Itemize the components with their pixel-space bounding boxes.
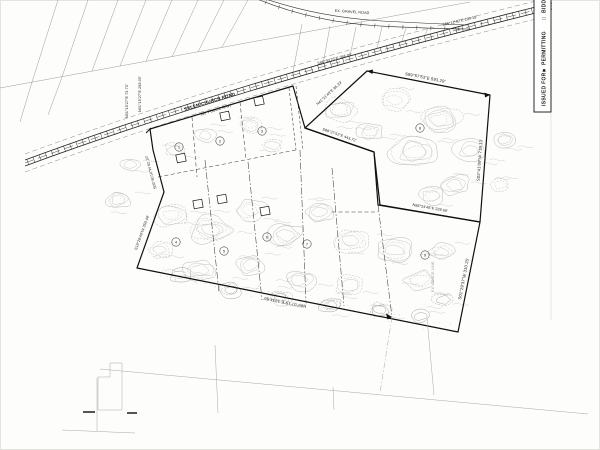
contour-line	[163, 211, 179, 220]
contour-line	[373, 306, 386, 315]
contour-stipple	[187, 276, 188, 277]
contour-line	[463, 146, 478, 156]
lot-number: 3	[261, 129, 263, 134]
contour-line	[406, 111, 422, 113]
contour-line	[210, 124, 226, 126]
adjacent-building-outline	[98, 363, 122, 410]
contour-line	[232, 277, 248, 279]
contour-stipple	[373, 310, 374, 311]
contour-line	[120, 160, 141, 172]
road-row-line	[25, 0, 548, 154]
contour-line	[332, 103, 347, 115]
contour-line	[311, 207, 327, 217]
plat-sheet: 1 2 3 4 5 6 7 8 9 S89°57'53"E 593.29' S0…	[0, 0, 600, 450]
contour-line	[336, 275, 362, 295]
road-tick	[100, 133, 102, 139]
contour-line	[402, 283, 418, 285]
contour-line	[431, 294, 453, 305]
contour-stipple	[268, 291, 269, 292]
contour-line	[382, 91, 409, 108]
contour-line	[387, 136, 437, 165]
contour-line	[262, 197, 278, 199]
lot-number: 2	[219, 139, 221, 144]
lot-number: 1	[178, 145, 180, 150]
contour-line	[315, 198, 331, 200]
contour-stipple	[318, 302, 319, 303]
road-tick	[261, 81, 263, 87]
contour-line	[435, 293, 451, 295]
contour-line	[377, 234, 393, 236]
bidding-option-label: BIDDING	[542, 0, 548, 13]
sheet-border-band: ISSUED FOR: ■ PERMITTING □ BIDDING	[534, 0, 551, 320]
contour-line	[308, 199, 324, 201]
contour-line	[333, 315, 349, 317]
contour-line	[277, 286, 293, 288]
contour-line	[270, 134, 286, 136]
contour-line	[325, 102, 354, 117]
contour-line	[494, 178, 510, 180]
contour-stipple	[272, 296, 273, 297]
road-edge-line	[25, 3, 552, 160]
contour-line	[442, 138, 458, 140]
contour-stipple	[174, 270, 175, 271]
contour-line	[125, 161, 137, 169]
contour-stipple	[321, 307, 322, 308]
contour-stipple	[205, 283, 206, 284]
contour-line	[392, 263, 408, 265]
contour-line	[471, 182, 487, 184]
contour-line	[165, 269, 181, 271]
contour-stipple	[175, 279, 176, 280]
contour-stipple	[435, 323, 436, 324]
contour-stipple	[321, 302, 322, 303]
contour-line	[158, 206, 187, 225]
contour-line	[276, 280, 292, 282]
contour-stipple	[381, 312, 382, 313]
road-tick	[39, 155, 41, 161]
contour-stipple	[213, 284, 214, 285]
contour-line	[378, 240, 412, 262]
road-tick	[181, 106, 183, 112]
contour-stipple	[306, 303, 307, 304]
lot-number-marker: 5	[220, 247, 228, 255]
contour-line	[437, 204, 453, 206]
contour-line	[518, 146, 534, 148]
contour-line	[429, 311, 445, 313]
contour-line	[276, 230, 295, 242]
proposed-building-footprint	[176, 153, 186, 163]
contour-stipple	[163, 268, 164, 269]
contour-line	[341, 297, 357, 299]
contour-line	[188, 263, 214, 276]
contour-line	[242, 117, 262, 133]
fence-note: EX. FENCE LINE	[431, 261, 435, 292]
proposed-building-footprint	[217, 194, 227, 203]
contour-stipple	[389, 314, 390, 315]
contour-line	[188, 276, 204, 278]
contour-stipple	[196, 283, 197, 284]
road-tick	[424, 35, 426, 41]
contour-line	[217, 131, 233, 133]
contour-line	[334, 230, 368, 254]
contour-line	[276, 246, 292, 248]
contour-line	[400, 140, 432, 160]
permitting-checkbox-icon: ■	[542, 69, 548, 72]
road-tick	[380, 47, 382, 53]
proposed-building-footprint	[260, 206, 270, 215]
contour-line	[385, 245, 403, 255]
contour-line	[238, 232, 254, 234]
contour-stipple	[450, 324, 451, 325]
contour-line	[275, 221, 291, 223]
preliminary-plat-drawing: 1 2 3 4 5 6 7 8 9 S89°57'53"E 593.29' S0…	[0, 0, 600, 450]
road-tick	[113, 129, 115, 135]
proposed-building-footprint	[193, 199, 203, 208]
lot-number: 7	[306, 242, 308, 247]
lot-number: 9	[424, 253, 426, 258]
contour-line	[318, 284, 334, 286]
road-tick	[531, 8, 533, 14]
contour-stipple	[353, 310, 354, 311]
road-bearing-left-1: N01°15'27"E 73.73'	[125, 84, 129, 118]
lot-number-marker: 4	[172, 238, 180, 246]
contour-line	[112, 195, 125, 204]
road-bearing-mid: S86°30'25"E 386.05'	[317, 52, 353, 65]
road-tick	[76, 141, 78, 147]
road-tick	[437, 32, 439, 38]
bidding-checkbox-icon: □	[542, 17, 548, 20]
adjoining-parcel-lines	[62, 317, 588, 433]
contour-line	[242, 204, 258, 215]
contour-line	[491, 179, 508, 192]
contour-line	[372, 305, 388, 316]
contour-line	[262, 139, 281, 152]
contour-line	[506, 148, 522, 150]
bearing-tract-a-east: S02°41'09"W 718.13'	[476, 139, 484, 182]
contour-stipple	[215, 287, 216, 288]
contour-line	[196, 224, 223, 238]
gravel-road	[250, 0, 470, 31]
contour-stipple	[175, 280, 176, 281]
road-tick	[274, 78, 276, 84]
road-tick	[361, 22, 362, 26]
contour-stipple	[438, 333, 439, 334]
contour-stipple	[350, 308, 351, 309]
contour-line	[190, 211, 206, 213]
contour-line	[309, 204, 332, 221]
contour-stipple	[421, 322, 422, 323]
contour-line	[184, 156, 200, 158]
contour-line	[489, 159, 505, 161]
contour-stipple	[314, 306, 315, 307]
road-tick	[33, 157, 35, 163]
contour-line	[214, 210, 230, 212]
contour-line	[447, 179, 463, 190]
contour-stipple	[394, 314, 395, 315]
road-tick	[462, 25, 464, 31]
contour-line	[436, 295, 450, 304]
contour-line	[426, 307, 442, 309]
contour-stipple	[176, 271, 177, 272]
contour-line	[241, 258, 260, 273]
contour-line	[243, 259, 259, 271]
contour-stipple	[238, 284, 239, 285]
contour-line	[453, 303, 469, 305]
contour-line	[381, 137, 397, 139]
contour-stipple	[285, 295, 286, 296]
contour-line	[363, 127, 377, 136]
contour-line	[263, 218, 279, 220]
contour-line	[337, 127, 353, 129]
contour-line	[434, 292, 450, 294]
lot-number-marker: 9	[421, 251, 429, 259]
bearing-tract-a-west: N41°21'40"E 86.33'	[316, 80, 343, 106]
contour-line	[453, 173, 469, 175]
contour-stipple	[358, 314, 359, 315]
issued-for-label: ISSUED FOR:	[542, 70, 548, 106]
contour-line	[200, 131, 211, 140]
road-tick	[449, 29, 451, 35]
contour-line	[464, 113, 480, 115]
contour-line	[362, 292, 378, 294]
bearing-west-lower: S18°26'40"W 350.48'	[134, 215, 150, 251]
lot-number-marker: 7	[303, 240, 311, 248]
contour-stipple	[235, 283, 236, 284]
contour-stipple	[319, 306, 320, 307]
contour-stipple	[347, 305, 348, 306]
lot-number-marker: 2	[216, 137, 224, 145]
road-tick	[368, 51, 370, 57]
permitting-option-label: PERMITTING	[542, 31, 548, 65]
contour-stipple	[327, 304, 328, 305]
road-tick	[168, 110, 170, 116]
contour-stipple	[242, 286, 243, 287]
contour-line	[153, 246, 166, 254]
contour-stipple	[328, 303, 329, 304]
contour-line	[111, 212, 127, 214]
lot-number: 4	[175, 240, 178, 245]
proposed-building-footprint	[220, 111, 230, 121]
contour-line	[264, 142, 279, 150]
lot-number: 8	[419, 126, 421, 131]
contour-line	[190, 264, 208, 275]
road-tick	[88, 137, 90, 143]
contour-stipple	[234, 291, 235, 292]
contour-stipple	[388, 321, 389, 322]
road-tick	[45, 152, 47, 158]
contour-line	[386, 96, 402, 105]
contour-stipple	[368, 310, 369, 311]
contour-line	[260, 150, 276, 152]
contour-stipple	[311, 295, 312, 296]
contour-line	[168, 256, 184, 258]
contour-stipple	[165, 270, 166, 271]
proposed-building-footprint	[254, 96, 264, 106]
lot-number: 5	[223, 249, 225, 254]
contour-line	[135, 192, 151, 194]
contour-line	[273, 225, 300, 246]
contour-stipple	[351, 314, 352, 315]
topographic-contours	[105, 87, 533, 333]
contour-line	[502, 177, 518, 179]
contour-line	[431, 114, 447, 126]
road-centerline	[25, 6, 552, 163]
contour-line	[428, 111, 454, 126]
contour-line	[362, 125, 379, 139]
contour-stipple	[162, 270, 163, 271]
contour-stipple	[399, 315, 400, 316]
contour-line	[419, 186, 443, 205]
contour-line	[244, 121, 256, 128]
contour-line	[330, 103, 351, 116]
lot-number-marker: 6	[263, 233, 271, 241]
issued-for-stamp-text: ISSUED FOR: ■ PERMITTING □ BIDDING	[542, 0, 548, 106]
contour-stipple	[251, 296, 252, 297]
proposed-building-footprints	[176, 96, 270, 216]
contour-stipple	[374, 318, 375, 319]
road-name-label: SALEM CHURCH ROAD	[183, 91, 235, 111]
contour-line	[390, 134, 406, 136]
contour-stipple	[423, 329, 424, 330]
road-tick	[249, 85, 251, 91]
contour-line	[265, 253, 281, 255]
contour-line	[434, 248, 449, 256]
contour-line	[202, 224, 220, 236]
contour-line	[495, 181, 508, 190]
access-corridor-line	[289, 88, 296, 150]
contour-line	[441, 177, 466, 192]
lot-number-marker: 8	[416, 124, 424, 132]
contour-line	[414, 313, 427, 321]
lot-number: 6	[266, 235, 268, 240]
contour-line	[267, 128, 283, 130]
contour-line	[338, 278, 360, 293]
contour-line	[455, 242, 471, 244]
contour-line	[346, 121, 362, 123]
contour-line	[438, 141, 454, 143]
contour-stipple	[172, 269, 173, 270]
contour-line	[191, 214, 233, 244]
road-tick	[286, 74, 288, 80]
contour-stipple	[230, 285, 231, 286]
contour-line	[162, 145, 178, 147]
lot-number-markers: 1 2 3 4 5 6 7 8 9	[172, 124, 429, 259]
contour-stipple	[258, 286, 259, 287]
road-tick	[355, 54, 357, 60]
contour-stipple	[167, 276, 168, 277]
contour-stipple	[214, 286, 215, 287]
contour-stipple	[256, 288, 257, 289]
contour-line	[305, 203, 334, 222]
contour-line	[383, 242, 405, 259]
road-bearing-right: S85°12'40"E 294.18'	[442, 15, 478, 27]
gravel-road-label: EX. GRAVEL ROAD	[335, 9, 370, 15]
contour-line	[132, 170, 148, 172]
road-bearing-left-2: N01°15'27"E 298.00'	[138, 76, 142, 112]
contour-line	[425, 192, 440, 201]
contour-line	[236, 256, 265, 276]
contour-line	[348, 252, 364, 254]
contour-stipple	[247, 287, 248, 288]
contour-stipple	[233, 292, 234, 293]
road-tick	[519, 11, 521, 17]
contour-stipple	[229, 287, 230, 288]
contour-stipple	[439, 322, 440, 323]
contour-stipple	[306, 298, 307, 299]
contour-stipple	[160, 276, 161, 277]
